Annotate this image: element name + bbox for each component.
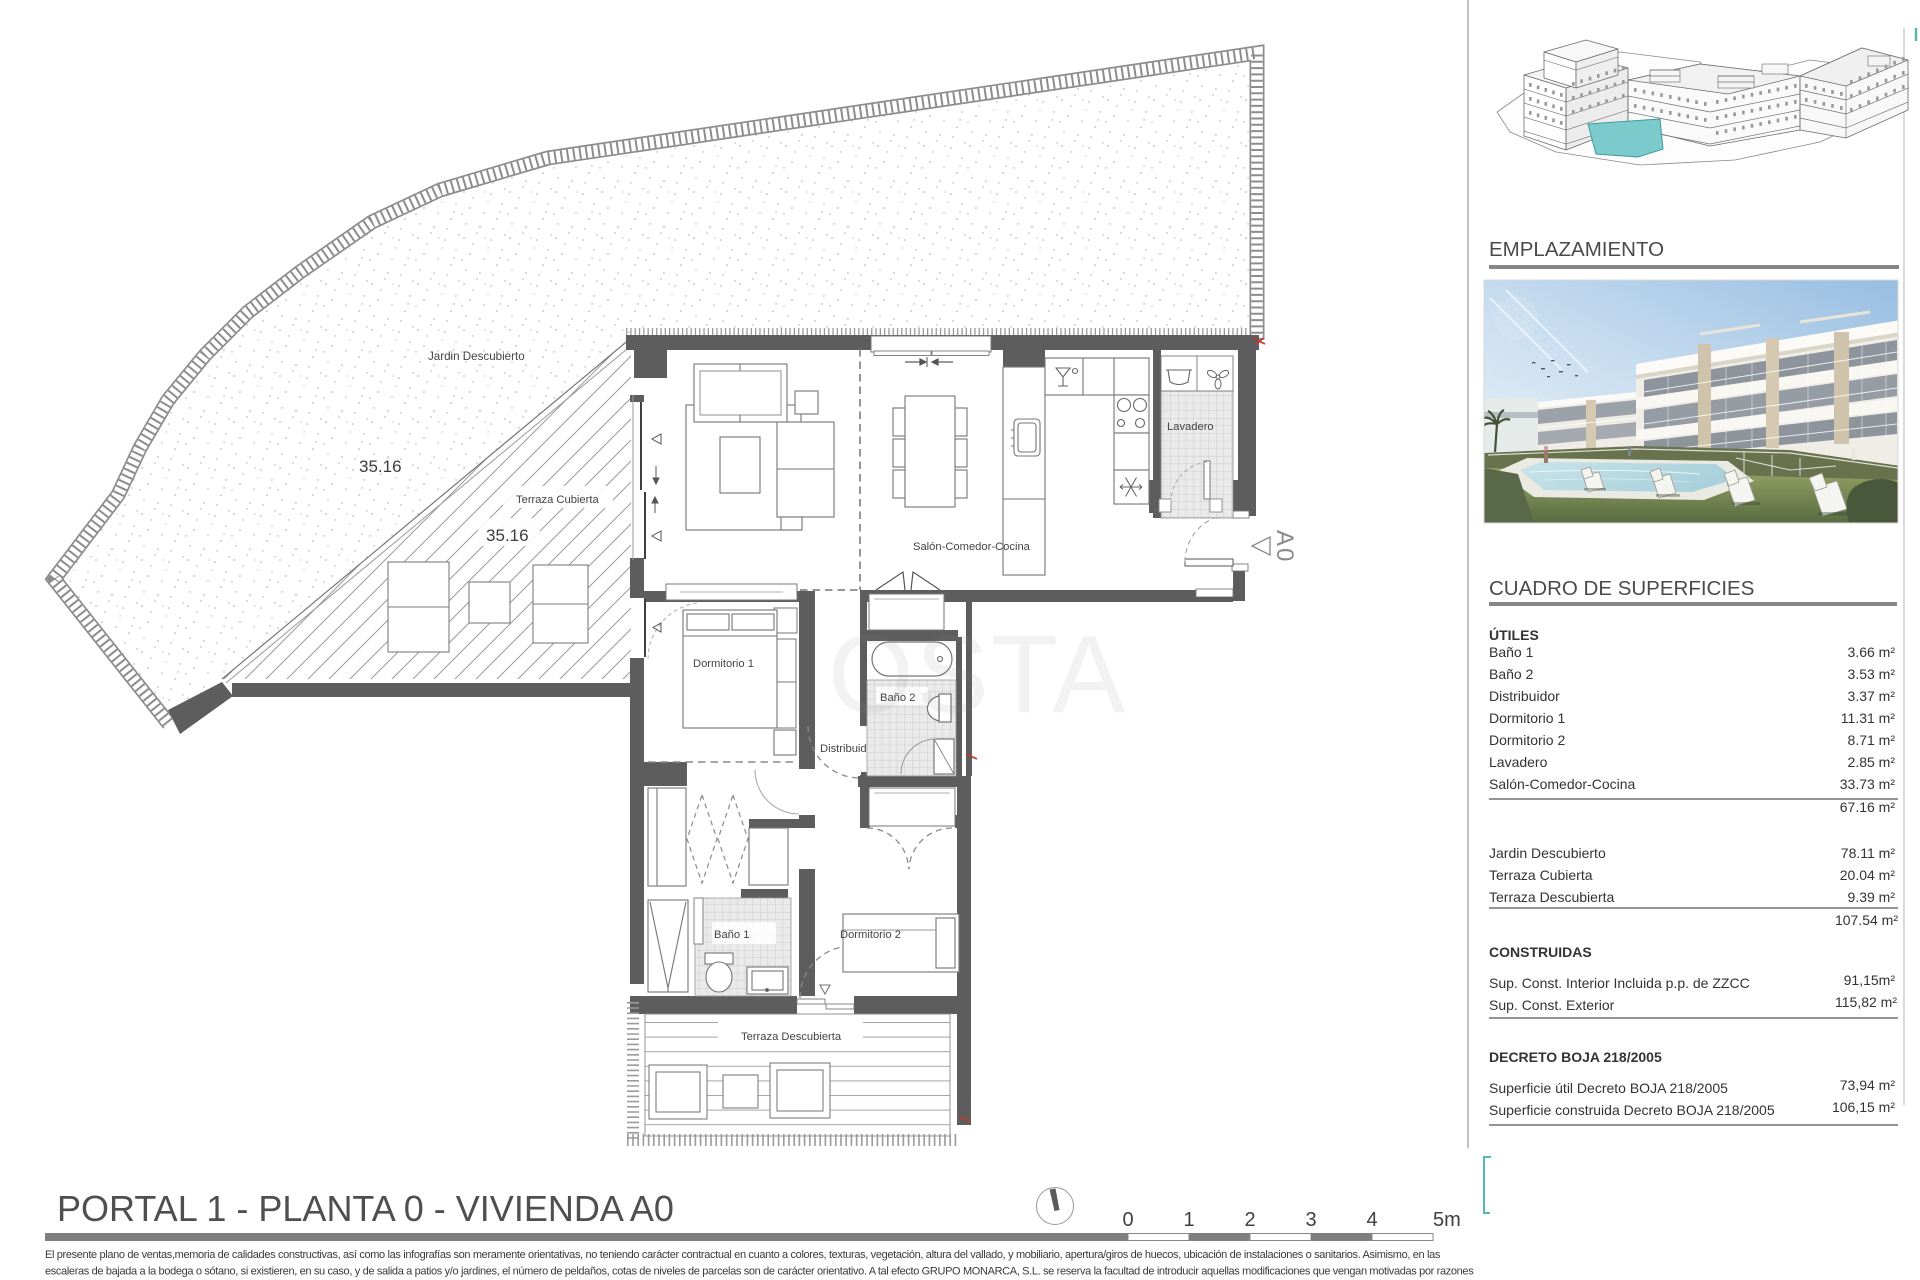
svg-text:35.16: 35.16 [486, 526, 529, 545]
svg-text:4: 4 [1366, 1209, 1377, 1231]
svg-text:3.53 m²: 3.53 m² [1848, 666, 1896, 682]
svg-text:Terraza Descubierta: Terraza Descubierta [1489, 889, 1614, 905]
svg-text:PORTAL 1 - PLANTA 0 - VIVIENDA: PORTAL 1 - PLANTA 0 - VIVIENDA A0 [57, 1188, 674, 1229]
svg-text:Sup. Const. Interior Incluida: Sup. Const. Interior Incluida p.p. de ZZ… [1489, 975, 1750, 991]
svg-text:CONSTRUIDAS: CONSTRUIDAS [1489, 944, 1592, 960]
svg-text:8.71 m²: 8.71 m² [1848, 732, 1896, 748]
svg-text:Sup. Const. Exterior: Sup. Const. Exterior [1489, 997, 1615, 1013]
svg-text:Terraza Cubierta: Terraza Cubierta [1489, 867, 1593, 883]
svg-text:5m: 5m [1433, 1209, 1461, 1231]
svg-text:ÚTILES: ÚTILES [1489, 626, 1539, 643]
svg-text:Salón-Comedor-Cocina: Salón-Comedor-Cocina [913, 541, 1031, 553]
svg-text:78.11 m²: 78.11 m² [1841, 845, 1896, 861]
svg-text:115,82 m²: 115,82 m² [1835, 994, 1897, 1010]
svg-text:20.04 m²: 20.04 m² [1840, 867, 1896, 883]
svg-text:106,15 m²: 106,15 m² [1832, 1099, 1895, 1115]
svg-text:Dormitorio 1: Dormitorio 1 [693, 658, 754, 670]
svg-text:Salón-Comedor-Cocina: Salón-Comedor-Cocina [1489, 776, 1636, 792]
svg-text:Terraza Descubierta: Terraza Descubierta [741, 1031, 842, 1043]
svg-text:Lavadero: Lavadero [1489, 754, 1548, 770]
svg-text:Baño 1: Baño 1 [1489, 644, 1534, 660]
svg-text:91,15m²: 91,15m² [1844, 972, 1896, 988]
svg-text:73,94 m²: 73,94 m² [1840, 1077, 1896, 1093]
svg-text:EMPLAZAMIENTO: EMPLAZAMIENTO [1489, 238, 1664, 261]
svg-text:67.16 m²: 67.16 m² [1840, 799, 1896, 815]
svg-text:Baño 1: Baño 1 [714, 929, 749, 941]
svg-text:9.39 m²: 9.39 m² [1848, 889, 1896, 905]
svg-text:33.73 m²: 33.73 m² [1840, 776, 1896, 792]
svg-text:Jardin Descubierto: Jardin Descubierto [1489, 845, 1606, 861]
svg-text:Superficie construida Decreto: Superficie construida Decreto BOJA 218/2… [1489, 1102, 1775, 1118]
svg-text:3.66 m²: 3.66 m² [1848, 644, 1896, 660]
svg-text:A0: A0 [1271, 530, 1298, 563]
svg-text:escaleras de bajada a la bodeg: escaleras de bajada a la bodega o sótano… [45, 1266, 1474, 1278]
svg-text:El presente plano de ventas,me: El presente plano de ventas,memoria de c… [45, 1249, 1441, 1261]
svg-text:Baño 2: Baño 2 [1489, 666, 1534, 682]
svg-text:Lavadero: Lavadero [1167, 421, 1214, 433]
svg-text:Dormitorio 2: Dormitorio 2 [840, 929, 901, 941]
svg-text:1: 1 [1183, 1209, 1194, 1231]
svg-text:CUADRO DE SUPERFICIES: CUADRO DE SUPERFICIES [1489, 577, 1754, 600]
svg-text:Terraza Cubierta: Terraza Cubierta [516, 494, 599, 506]
svg-text:2.85 m²: 2.85 m² [1848, 754, 1896, 770]
svg-text:Dormitorio 2: Dormitorio 2 [1489, 732, 1565, 748]
svg-text:35.16: 35.16 [359, 457, 402, 476]
svg-text:Superficie útil Decreto BOJA 2: Superficie útil Decreto BOJA 218/2005 [1489, 1080, 1728, 1096]
svg-text:Distribuidor: Distribuidor [1489, 688, 1560, 704]
svg-text:OSTA: OSTA [828, 613, 1127, 736]
svg-text:11.31 m²: 11.31 m² [1841, 710, 1896, 726]
svg-text:107.54 m²: 107.54 m² [1835, 912, 1898, 928]
svg-text:3.37 m²: 3.37 m² [1848, 688, 1896, 704]
svg-text:3: 3 [1305, 1209, 1316, 1231]
svg-text:0: 0 [1122, 1209, 1133, 1231]
svg-text:2: 2 [1244, 1209, 1255, 1231]
svg-text:Dormitorio 1: Dormitorio 1 [1489, 710, 1565, 726]
svg-text:DECRETO BOJA 218/2005: DECRETO BOJA 218/2005 [1489, 1049, 1662, 1065]
svg-text:Jardin Descubierto: Jardin Descubierto [428, 350, 525, 363]
